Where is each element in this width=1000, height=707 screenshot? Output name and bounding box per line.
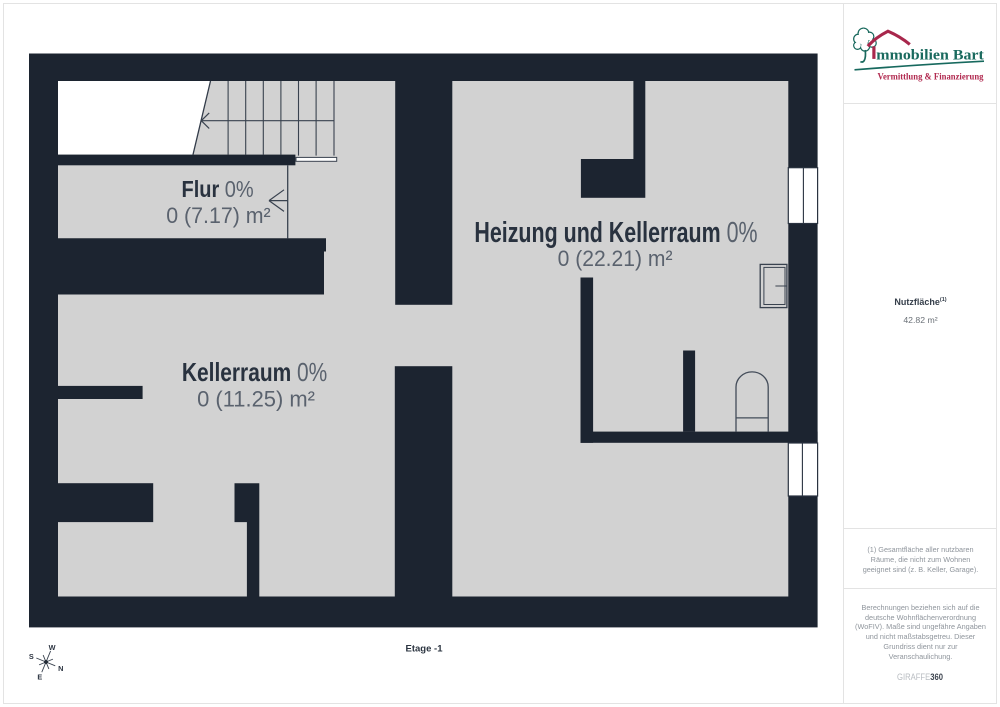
svg-text:0 (7.17) m²: 0 (7.17) m² xyxy=(166,203,271,228)
svg-text:Flur 0%: Flur 0% xyxy=(182,176,254,202)
svg-text:W: W xyxy=(49,643,56,652)
svg-text:0 (22.21) m²: 0 (22.21) m² xyxy=(558,246,673,271)
svg-text:Etage -1: Etage -1 xyxy=(406,644,444,655)
svg-text:Heizung und Kellerraum 0%: Heizung und Kellerraum 0% xyxy=(474,217,757,249)
svg-text:N: N xyxy=(58,664,63,673)
svg-text:Kellerraum 0%: Kellerraum 0% xyxy=(182,357,327,387)
svg-text:E: E xyxy=(37,673,42,682)
svg-text:0 (11.25) m²: 0 (11.25) m² xyxy=(197,386,315,411)
svg-text:mmobilien Bart: mmobilien Bart xyxy=(876,48,984,64)
svg-text:S: S xyxy=(29,652,34,661)
svg-text:Vermittlung & Finanzierung: Vermittlung & Finanzierung xyxy=(878,71,984,82)
